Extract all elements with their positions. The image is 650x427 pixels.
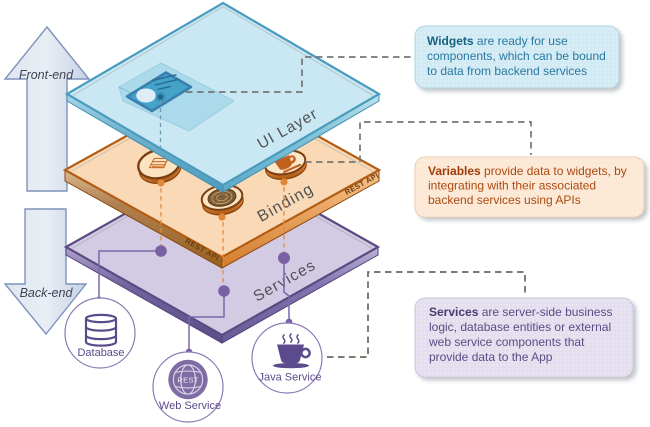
svg-text:Front-end: Front-end — [19, 68, 74, 82]
svg-text:Database: Database — [77, 347, 124, 359]
svg-text:web service components that: web service components that — [428, 335, 585, 349]
svg-text:Variables provide data to widg: Variables provide data to widgets, by — [428, 164, 627, 178]
svg-text:integrating with their associa: integrating with their associated — [428, 179, 596, 193]
svg-text:REST: REST — [177, 376, 198, 385]
svg-text:Widgets are ready for use: Widgets are ready for use — [427, 34, 568, 48]
svg-text:Java Service: Java Service — [259, 372, 322, 384]
svg-text:Back-end: Back-end — [20, 286, 74, 300]
svg-text:backend services using APIs: backend services using APIs — [428, 193, 581, 207]
svg-text:Web Service: Web Service — [159, 400, 221, 412]
svg-text:logic, database entities or ex: logic, database entities or external — [429, 320, 611, 334]
svg-text:Services are server-side busin: Services are server-side business — [429, 305, 612, 319]
svg-text:provide data to the App: provide data to the App — [429, 350, 553, 364]
svg-text:to data from backend services: to data from backend services — [427, 64, 587, 78]
svg-text:components, which can be bound: components, which can be bound — [427, 49, 606, 63]
